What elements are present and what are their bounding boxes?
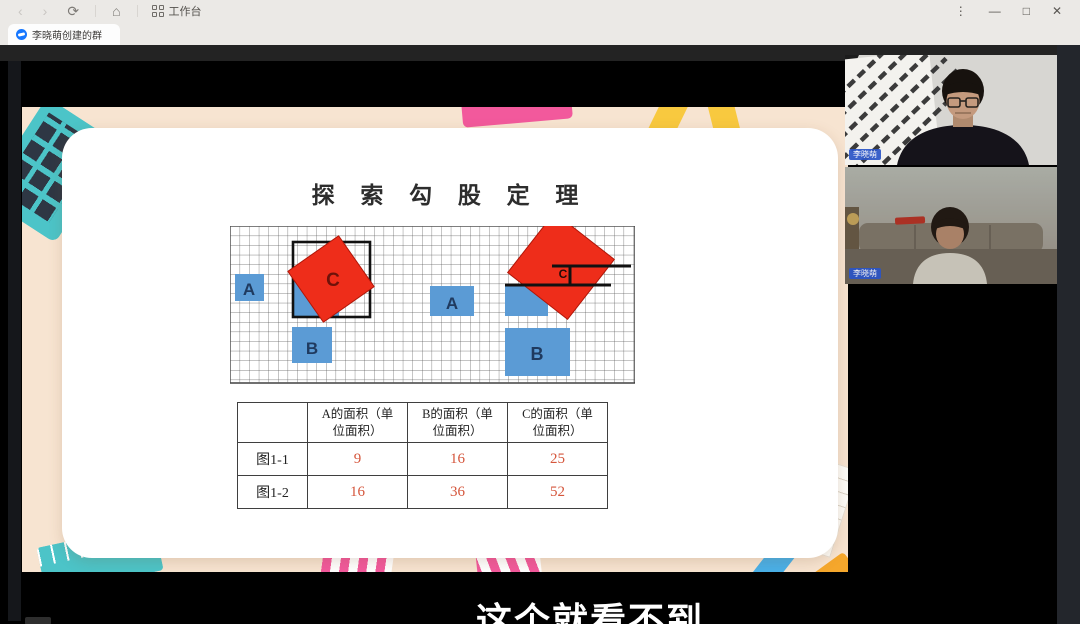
tab-group-chat[interactable]: 李晓萌创建的群 <box>8 24 120 45</box>
header-area-c: C的面积（单位面积） <box>508 403 608 443</box>
dingtalk-window: ‹ › ⟳ ⌂ 工作台 ⋮ — □ ✕ 李晓萌创建的群 <box>0 0 1080 624</box>
close-button[interactable]: ✕ <box>1052 1 1062 21</box>
tab-strip: 李晓萌创建的群 <box>0 22 1080 45</box>
slide-card: 探 索 勾 股 定 理 A <box>62 128 838 558</box>
refresh-icon[interactable]: ⟳ <box>67 1 79 21</box>
participant-2-feed <box>845 167 1057 284</box>
label-a-right: A <box>446 294 458 313</box>
workbench-label[interactable]: 工作台 <box>169 3 202 19</box>
header-empty <box>238 403 308 443</box>
minimize-button[interactable]: — <box>989 1 1001 21</box>
more-icon[interactable]: ⋮ <box>955 1 967 21</box>
grid-figure-svg: A C B A <box>230 226 635 386</box>
cell-b: 16 <box>408 443 508 476</box>
collapsed-side-panel[interactable] <box>1057 45 1080 624</box>
table-row: 图1-1 9 16 25 <box>238 443 608 476</box>
header-area-b: B的面积（单位面积） <box>408 403 508 443</box>
tab-label: 李晓萌创建的群 <box>32 27 102 42</box>
slide-title: 探 索 勾 股 定 理 <box>62 176 838 210</box>
live-caption: 这个就看不到 <box>0 592 1080 624</box>
divider <box>95 5 96 17</box>
label-a-left: A <box>243 280 255 299</box>
screen-share-stage: 探 索 勾 股 定 理 A <box>0 45 1080 624</box>
forward-icon[interactable]: › <box>43 1 48 21</box>
decor-eraser <box>461 107 573 128</box>
label-c-right: C <box>559 267 568 281</box>
cell-a: 16 <box>308 476 408 509</box>
shared-slide: 探 索 勾 股 定 理 A <box>22 107 848 572</box>
pythagoras-figure: A C B A <box>230 226 635 386</box>
table-header-row: A的面积（单位面积） B的面积（单位面积） C的面积（单位面积） <box>238 403 608 443</box>
label-b-right: B <box>531 344 544 364</box>
dingtalk-group-icon <box>16 29 27 40</box>
participant-video-1[interactable]: 李晓萌 <box>845 55 1057 165</box>
back-icon[interactable]: ‹ <box>18 1 23 21</box>
table-row: 图1-2 16 36 52 <box>238 476 608 509</box>
maximize-button[interactable]: □ <box>1023 1 1030 21</box>
cell-c: 52 <box>508 476 608 509</box>
window-titlebar: ‹ › ⟳ ⌂ 工作台 ⋮ — □ ✕ <box>0 0 1080 22</box>
cell-c: 25 <box>508 443 608 476</box>
home-icon[interactable]: ⌂ <box>112 1 120 21</box>
header-area-a: A的面积（单位面积） <box>308 403 408 443</box>
stage-left-strip <box>8 61 21 621</box>
row-label: 图1-2 <box>238 476 308 509</box>
window-controls: ⋮ — □ ✕ <box>955 1 1072 21</box>
participant-video-2[interactable]: 李晓萌 <box>845 167 1057 284</box>
participant-2-name: 李晓萌 <box>849 268 881 279</box>
participant-1-name: 李晓萌 <box>849 149 881 160</box>
cell-b: 36 <box>408 476 508 509</box>
cell-a: 9 <box>308 443 408 476</box>
label-c-left: C <box>326 270 340 291</box>
areas-table: A的面积（单位面积） B的面积（单位面积） C的面积（单位面积） 图1-1 9 … <box>237 402 608 509</box>
divider <box>137 5 138 17</box>
workbench-grid-icon[interactable] <box>152 5 164 17</box>
label-b-left: B <box>306 339 318 358</box>
row-label: 图1-1 <box>238 443 308 476</box>
